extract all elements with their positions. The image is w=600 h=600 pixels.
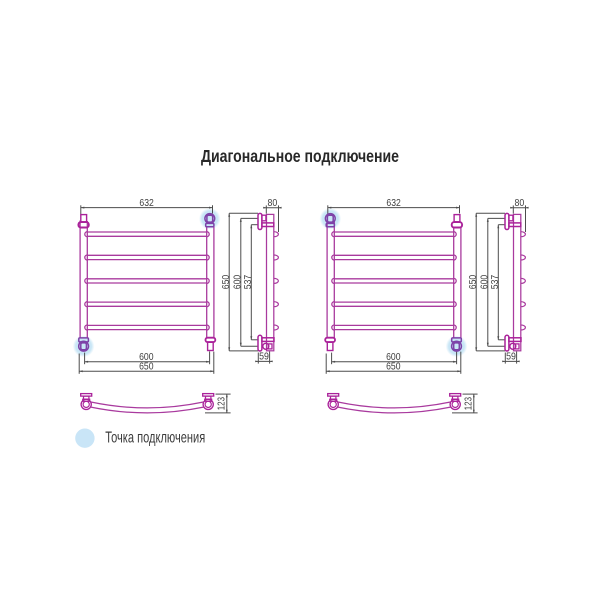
svg-text:Точка подключения: Точка подключения xyxy=(105,429,205,446)
svg-text:600: 600 xyxy=(233,275,244,290)
svg-text:59: 59 xyxy=(506,352,516,363)
svg-text:Диагональное подключение: Диагональное подключение xyxy=(201,146,399,166)
svg-text:650: 650 xyxy=(221,275,232,290)
svg-text:650: 650 xyxy=(468,275,479,290)
svg-text:650: 650 xyxy=(139,362,154,373)
svg-text:80: 80 xyxy=(268,198,278,209)
svg-text:632: 632 xyxy=(386,198,401,209)
svg-text:650: 650 xyxy=(386,362,401,373)
svg-text:123: 123 xyxy=(216,397,227,411)
svg-text:59: 59 xyxy=(259,352,269,363)
svg-text:600: 600 xyxy=(480,275,491,290)
svg-text:537: 537 xyxy=(243,275,254,290)
svg-text:123: 123 xyxy=(463,397,474,411)
svg-text:632: 632 xyxy=(139,198,154,209)
svg-text:537: 537 xyxy=(490,275,501,290)
svg-text:80: 80 xyxy=(515,198,525,209)
